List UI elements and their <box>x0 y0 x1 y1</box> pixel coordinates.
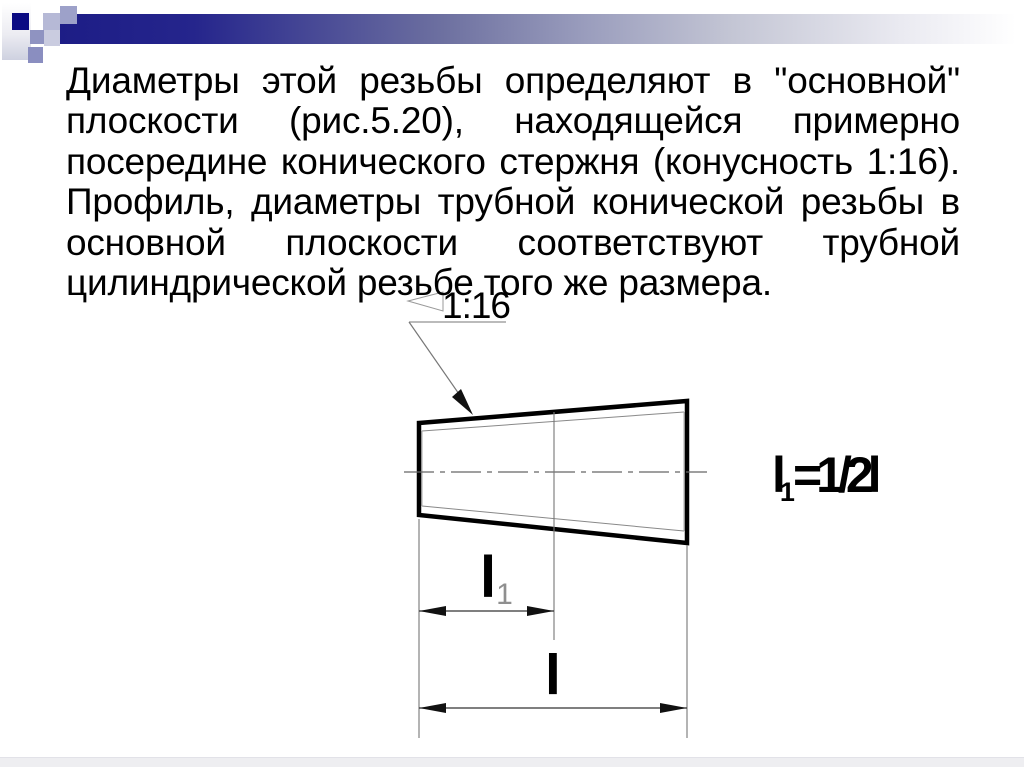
formula-label: l1=1/2l <box>772 447 879 507</box>
body-text-line: посередине конического стержня (конуснос… <box>66 142 960 182</box>
presentation-slide: Диаметры этой резьбы определяют в "основ… <box>0 0 1024 767</box>
body-text-block: Диаметры этой резьбы определяют в "основ… <box>66 61 960 303</box>
dimension-l1-letter: l <box>480 545 496 610</box>
body-text-line: цилиндрической резьбе того же размера. <box>66 263 960 303</box>
body-text-line: плоскости (рис.5.20), находящейся пример… <box>66 101 960 141</box>
dimension-l-label: l <box>545 643 561 707</box>
dimension-arrow-icon <box>527 606 554 616</box>
body-text-line: Профиль, диаметры трубной конической рез… <box>66 182 960 222</box>
dimension-l1-subscript: 1 <box>496 578 513 611</box>
formula-rest: =1/2l <box>793 447 879 503</box>
body-text-line: Диаметры этой резьбы определяют в "основ… <box>66 61 960 101</box>
dimension-arrow-icon <box>419 703 446 713</box>
dimension-arrow-icon <box>660 703 687 713</box>
dimension-l1-label: l1 <box>480 545 513 611</box>
dimension-arrow-icon <box>419 606 446 616</box>
body-text-line: основной плоскости соответствуют трубной <box>66 223 960 263</box>
leader-arrowhead-icon <box>452 389 473 415</box>
